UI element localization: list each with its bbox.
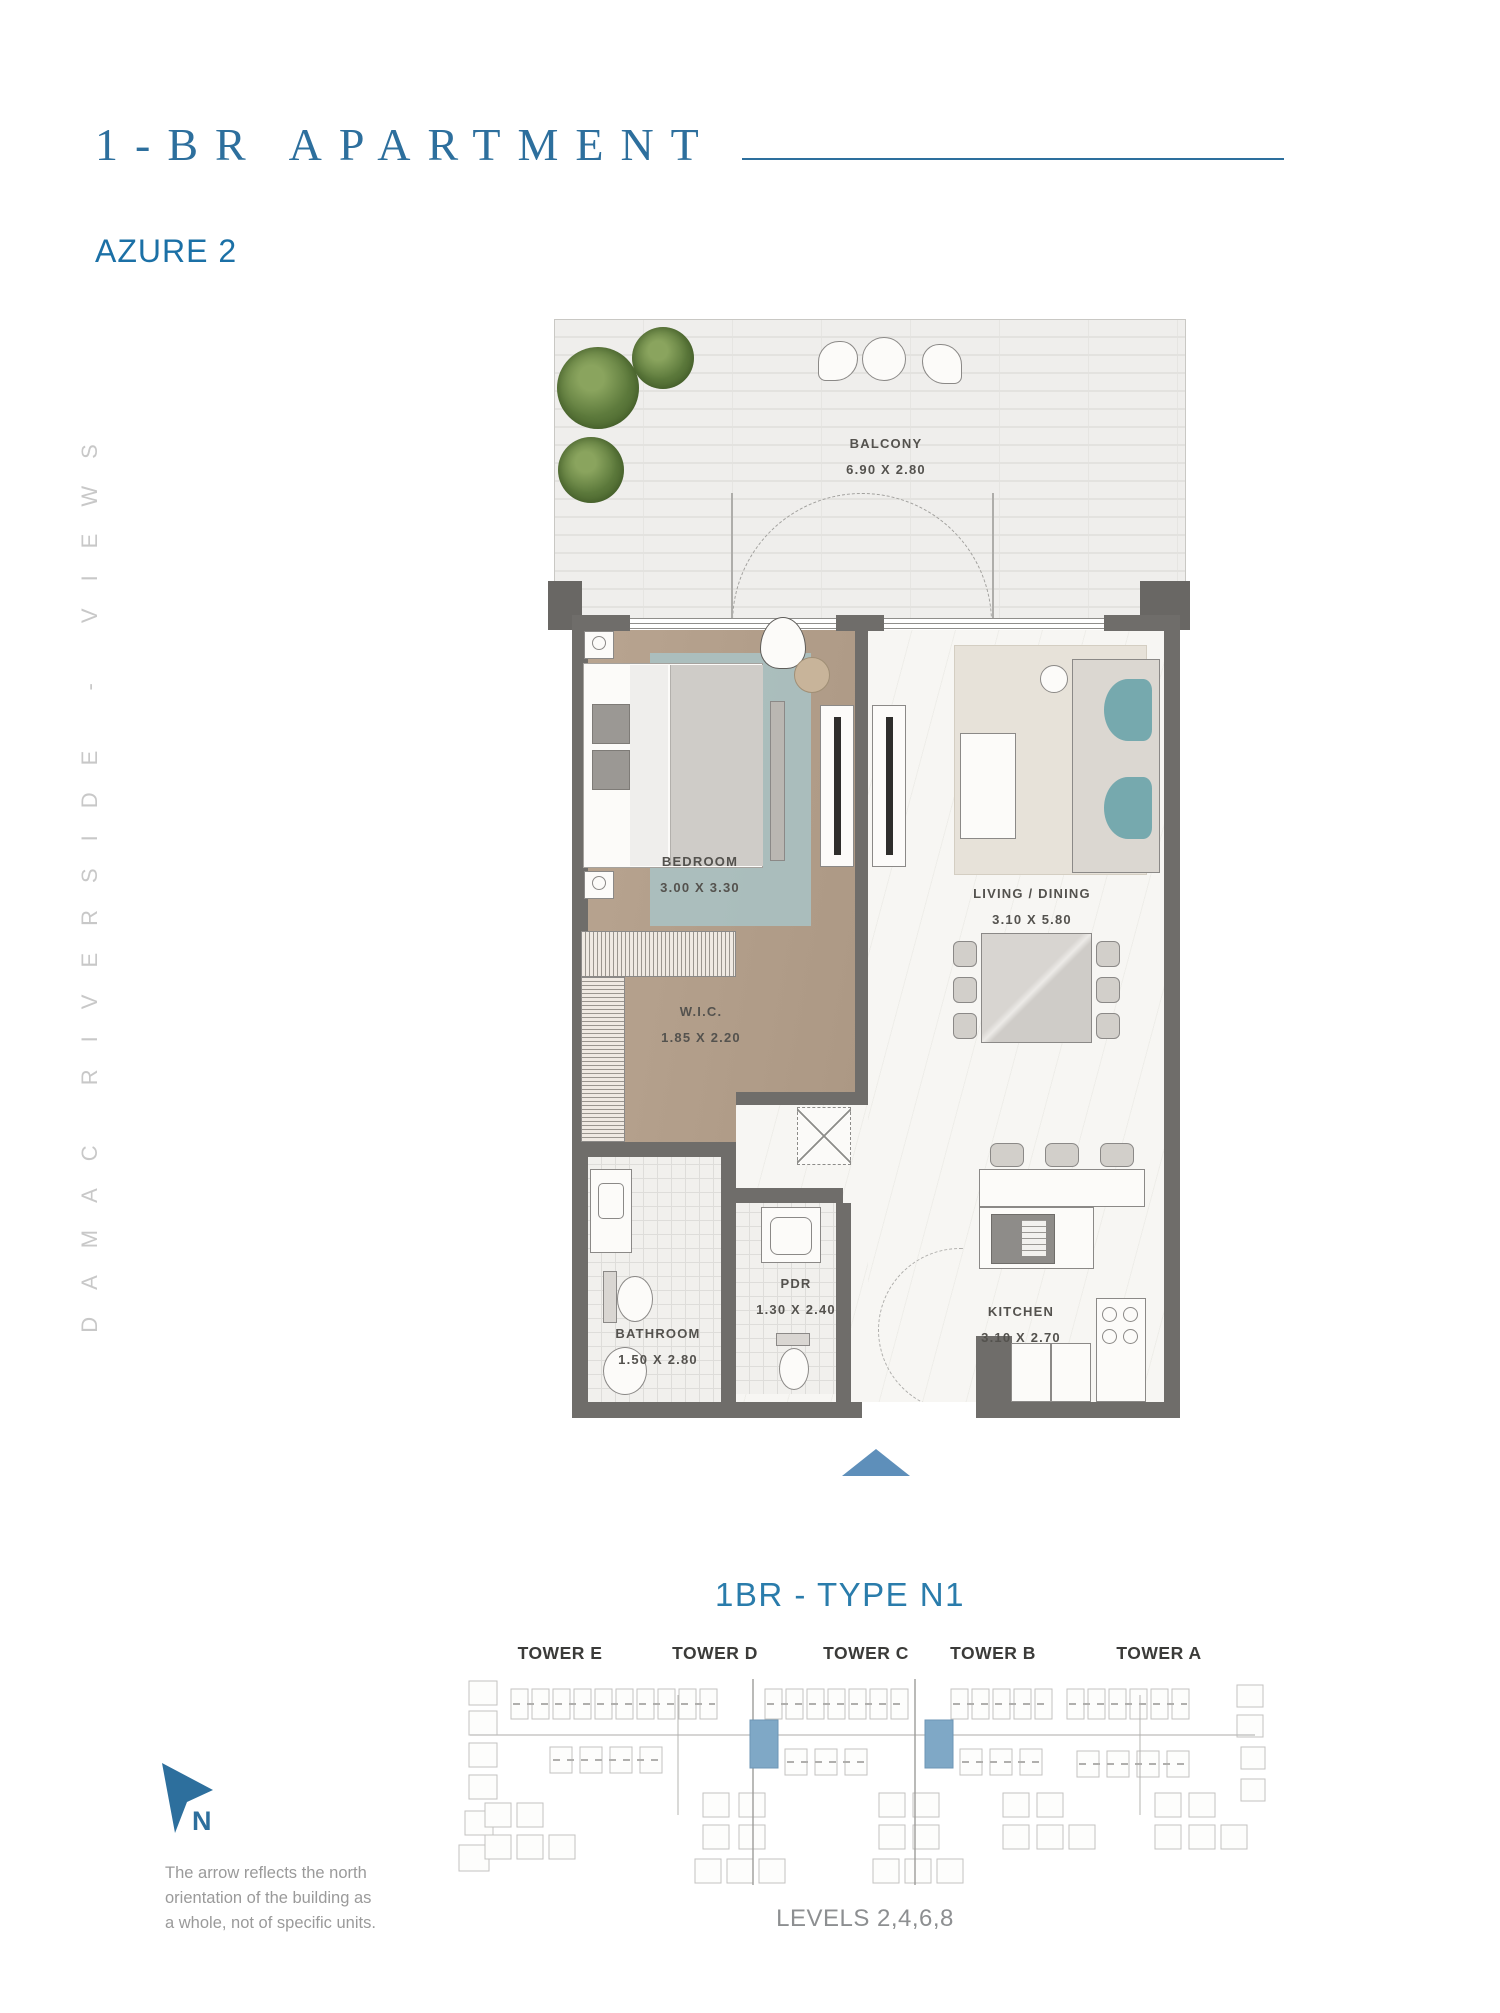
wall-divider [855,630,868,1104]
coffee-table [1040,665,1068,693]
plant-icon [557,347,639,429]
burner-icon [1102,1307,1117,1322]
lamp-icon [592,636,606,650]
wall [736,1188,843,1203]
bar-stool [1045,1143,1079,1167]
room-label-wic: W.I.C. 1.85 X 2.20 [661,999,741,1051]
brochure-page: 1-BR APARTMENT AZURE 2 DAMAC RIVERSIDE -… [0,0,1500,2013]
wall [581,1142,736,1157]
dining-table [981,933,1092,1043]
tower-label-d: TOWER D [672,1643,758,1664]
wall [836,615,884,631]
wall [736,1092,868,1105]
page-subtitle: AZURE 2 [95,233,237,270]
bed-sheet [630,665,668,866]
dining-chair [1096,1013,1120,1039]
sofa-cushion [1104,679,1152,741]
wall-right [1164,615,1180,1418]
shaft-box [797,1107,851,1165]
kitchen-island [979,1169,1145,1207]
page-title: 1-BR APARTMENT [95,118,716,171]
wall [721,1157,736,1402]
vanity-basin [598,1183,624,1219]
door-leaf-line [992,493,994,623]
bed-bench [770,701,785,861]
plant-icon [558,437,624,503]
tower-label-e: TOWER E [518,1643,603,1664]
wic-closet [581,931,736,977]
dining-chair [1096,977,1120,1003]
title-rule [742,158,1284,160]
cabinet-divider [1050,1343,1052,1402]
bar-stool [990,1143,1024,1167]
dining-chair [1096,941,1120,967]
tower-label-c: TOWER C [823,1643,909,1664]
burner-icon [1123,1329,1138,1344]
levels-label: LEVELS 2,4,6,8 [776,1905,954,1933]
balcony-table [862,337,906,381]
chaise [960,733,1016,839]
pillow [592,750,630,790]
sofa-cushion [1104,777,1152,839]
pdr-toilet-tank [776,1333,810,1346]
tower-label-b: TOWER B [950,1643,1036,1664]
room-label-kitchen: KITCHEN 3.10 X 2.70 [981,1299,1061,1351]
room-label-living-dining: LIVING / DINING 3.10 X 5.80 [973,881,1091,933]
pillow [592,704,630,744]
plant-icon [632,327,694,389]
room-label-balcony: BALCONY 6.90 X 2.80 [846,431,926,483]
dining-chair [953,941,977,967]
window-band [884,618,1104,629]
site-plan-diagram [455,1675,1270,1910]
tower-label-a: TOWER A [1116,1643,1201,1664]
unit-type-label: 1BR - TYPE N1 [715,1576,965,1614]
burner-icon [1102,1329,1117,1344]
wall-bottom [572,1402,862,1418]
pdr-basin [770,1217,812,1255]
panel-handle [886,717,893,855]
floor-plan: BALCONY 6.90 X 2.80 BEDROOM 3.00 X 3.30 … [548,313,1190,1465]
north-note: The arrow reflects the north orientation… [165,1861,376,1936]
room-label-bathroom: BATHROOM 1.50 X 2.80 [615,1321,700,1373]
highlighted-unit [925,1720,953,1768]
bed-duvet [670,665,763,866]
door-leaf-line [731,493,733,623]
panel-handle [834,717,841,855]
toilet-bowl [617,1276,653,1322]
bar-stool [1100,1143,1134,1167]
pdr-toilet-bowl [779,1348,809,1390]
burner-icon [1123,1307,1138,1322]
wic-closet [581,977,625,1142]
dining-chair [953,1013,977,1039]
wall [836,1203,851,1402]
window-band [630,618,836,629]
side-brand-text: DAMAC RIVERSIDE - VIEWS [77,417,103,1333]
sink-drainer [1022,1220,1046,1256]
lamp-icon [592,876,606,890]
entry-arrow-icon [842,1449,910,1476]
room-label-bedroom: BEDROOM 3.00 X 3.30 [660,849,740,901]
entry-door-swing [878,1248,964,1402]
side-table [794,657,830,693]
highlighted-unit [750,1720,778,1768]
toilet-tank [603,1271,617,1323]
dining-chair [953,977,977,1003]
north-label: N [192,1806,212,1837]
room-label-pdr: PDR 1.30 X 2.40 [756,1271,836,1323]
